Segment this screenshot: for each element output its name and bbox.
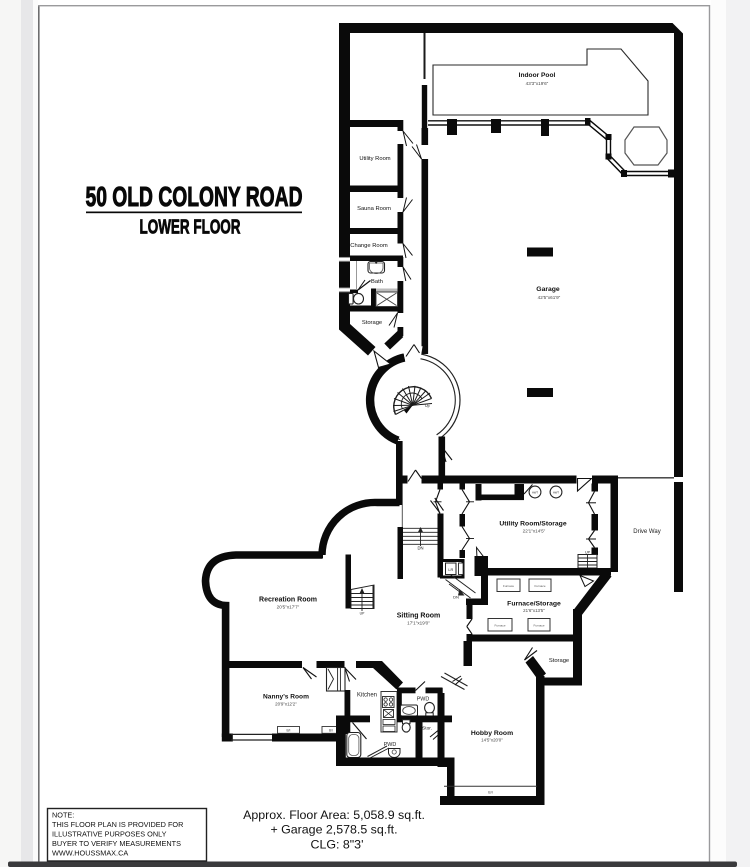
svg-text:42'5"x61'9": 42'5"x61'9" <box>538 295 561 300</box>
svg-text:22'1"x14'5": 22'1"x14'5" <box>523 529 546 534</box>
svg-text:CLG: 8"3': CLG: 8"3' <box>311 838 364 852</box>
svg-text:UP: UP <box>360 612 365 616</box>
svg-text:Furnace/Storage: Furnace/Storage <box>507 601 561 608</box>
svg-text:Stor.: Stor. <box>422 726 432 732</box>
svg-text:43'3"x19'6": 43'3"x19'6" <box>526 81 549 86</box>
svg-text:UP: UP <box>585 551 591 555</box>
svg-text:NOTE:: NOTE: <box>52 811 74 820</box>
svg-text:Sauna Room: Sauna Room <box>357 206 391 212</box>
svg-text:Hobby Room: Hobby Room <box>471 730 513 737</box>
svg-text:Indoor Pool: Indoor Pool <box>519 72 556 79</box>
svg-text:Utility Room/Storage: Utility Room/Storage <box>499 521 566 528</box>
svg-text:Storage: Storage <box>549 658 569 664</box>
svg-text:Furnace: Furnace <box>503 584 514 588</box>
svg-text:BUYER TO VERIFY MEASUREMENTS: BUYER TO VERIFY MEASUREMENTS <box>52 839 181 848</box>
svg-text:Change Room: Change Room <box>350 243 388 249</box>
svg-text:Storage: Storage <box>362 320 382 326</box>
svg-text:Furnace: Furnace <box>533 623 544 627</box>
svg-text:HWT: HWT <box>553 490 559 494</box>
svg-text:+ Garage 2,578.5 sq.ft.: + Garage 2,578.5 sq.ft. <box>270 823 397 837</box>
svg-text:Furnace: Furnace <box>534 584 545 588</box>
svg-text:DN: DN <box>453 595 459 600</box>
svg-text:Drive Way: Drive Way <box>633 529 660 535</box>
svg-text:Approx. Floor Area: 5,058.9 sq: Approx. Floor Area: 5,058.9 sq.ft. <box>243 808 425 822</box>
svg-text:21'6"x13'5": 21'6"x13'5" <box>523 608 545 613</box>
svg-text:HWT: HWT <box>532 490 538 494</box>
svg-text:LOWER FLOOR: LOWER FLOOR <box>140 217 241 239</box>
svg-text:B/I: B/I <box>488 791 492 795</box>
svg-text:Recreation Room: Recreation Room <box>259 597 317 604</box>
svg-text:Sitting Room: Sitting Room <box>397 613 441 620</box>
svg-text:20'5"x17'7": 20'5"x17'7" <box>277 605 300 610</box>
svg-text:B/I: B/I <box>329 729 333 733</box>
svg-text:THIS FLOOR PLAN IS PROVIDED FO: THIS FLOOR PLAN IS PROVIDED FOR <box>52 820 183 829</box>
svg-text:Utility Room: Utility Room <box>359 156 390 162</box>
svg-text:WWW.HOUSSMAX.CA: WWW.HOUSSMAX.CA <box>52 849 128 858</box>
svg-text:Furnace: Furnace <box>494 623 505 627</box>
svg-text:DN: DN <box>417 546 423 551</box>
svg-text:Up: Up <box>425 404 430 408</box>
svg-text:PWD: PWD <box>417 697 430 703</box>
svg-text:B/I: B/I <box>287 729 291 733</box>
svg-text:Nanny's Room: Nanny's Room <box>263 694 309 701</box>
svg-text:50 OLD COLONY ROAD: 50 OLD COLONY ROAD <box>86 181 303 212</box>
svg-text:LR: LR <box>448 568 453 572</box>
svg-text:Bath: Bath <box>371 279 383 285</box>
svg-text:17'1"x19'0": 17'1"x19'0" <box>407 621 430 626</box>
svg-text:Garage: Garage <box>536 286 560 293</box>
svg-text:Kitchen: Kitchen <box>357 693 377 699</box>
svg-text:ILLUSTRATIVE PURPOSES ONLY: ILLUSTRATIVE PURPOSES ONLY <box>52 830 167 839</box>
svg-text:20'9"x12'2": 20'9"x12'2" <box>275 702 297 707</box>
svg-text:14'5"x20'0": 14'5"x20'0" <box>481 738 503 743</box>
